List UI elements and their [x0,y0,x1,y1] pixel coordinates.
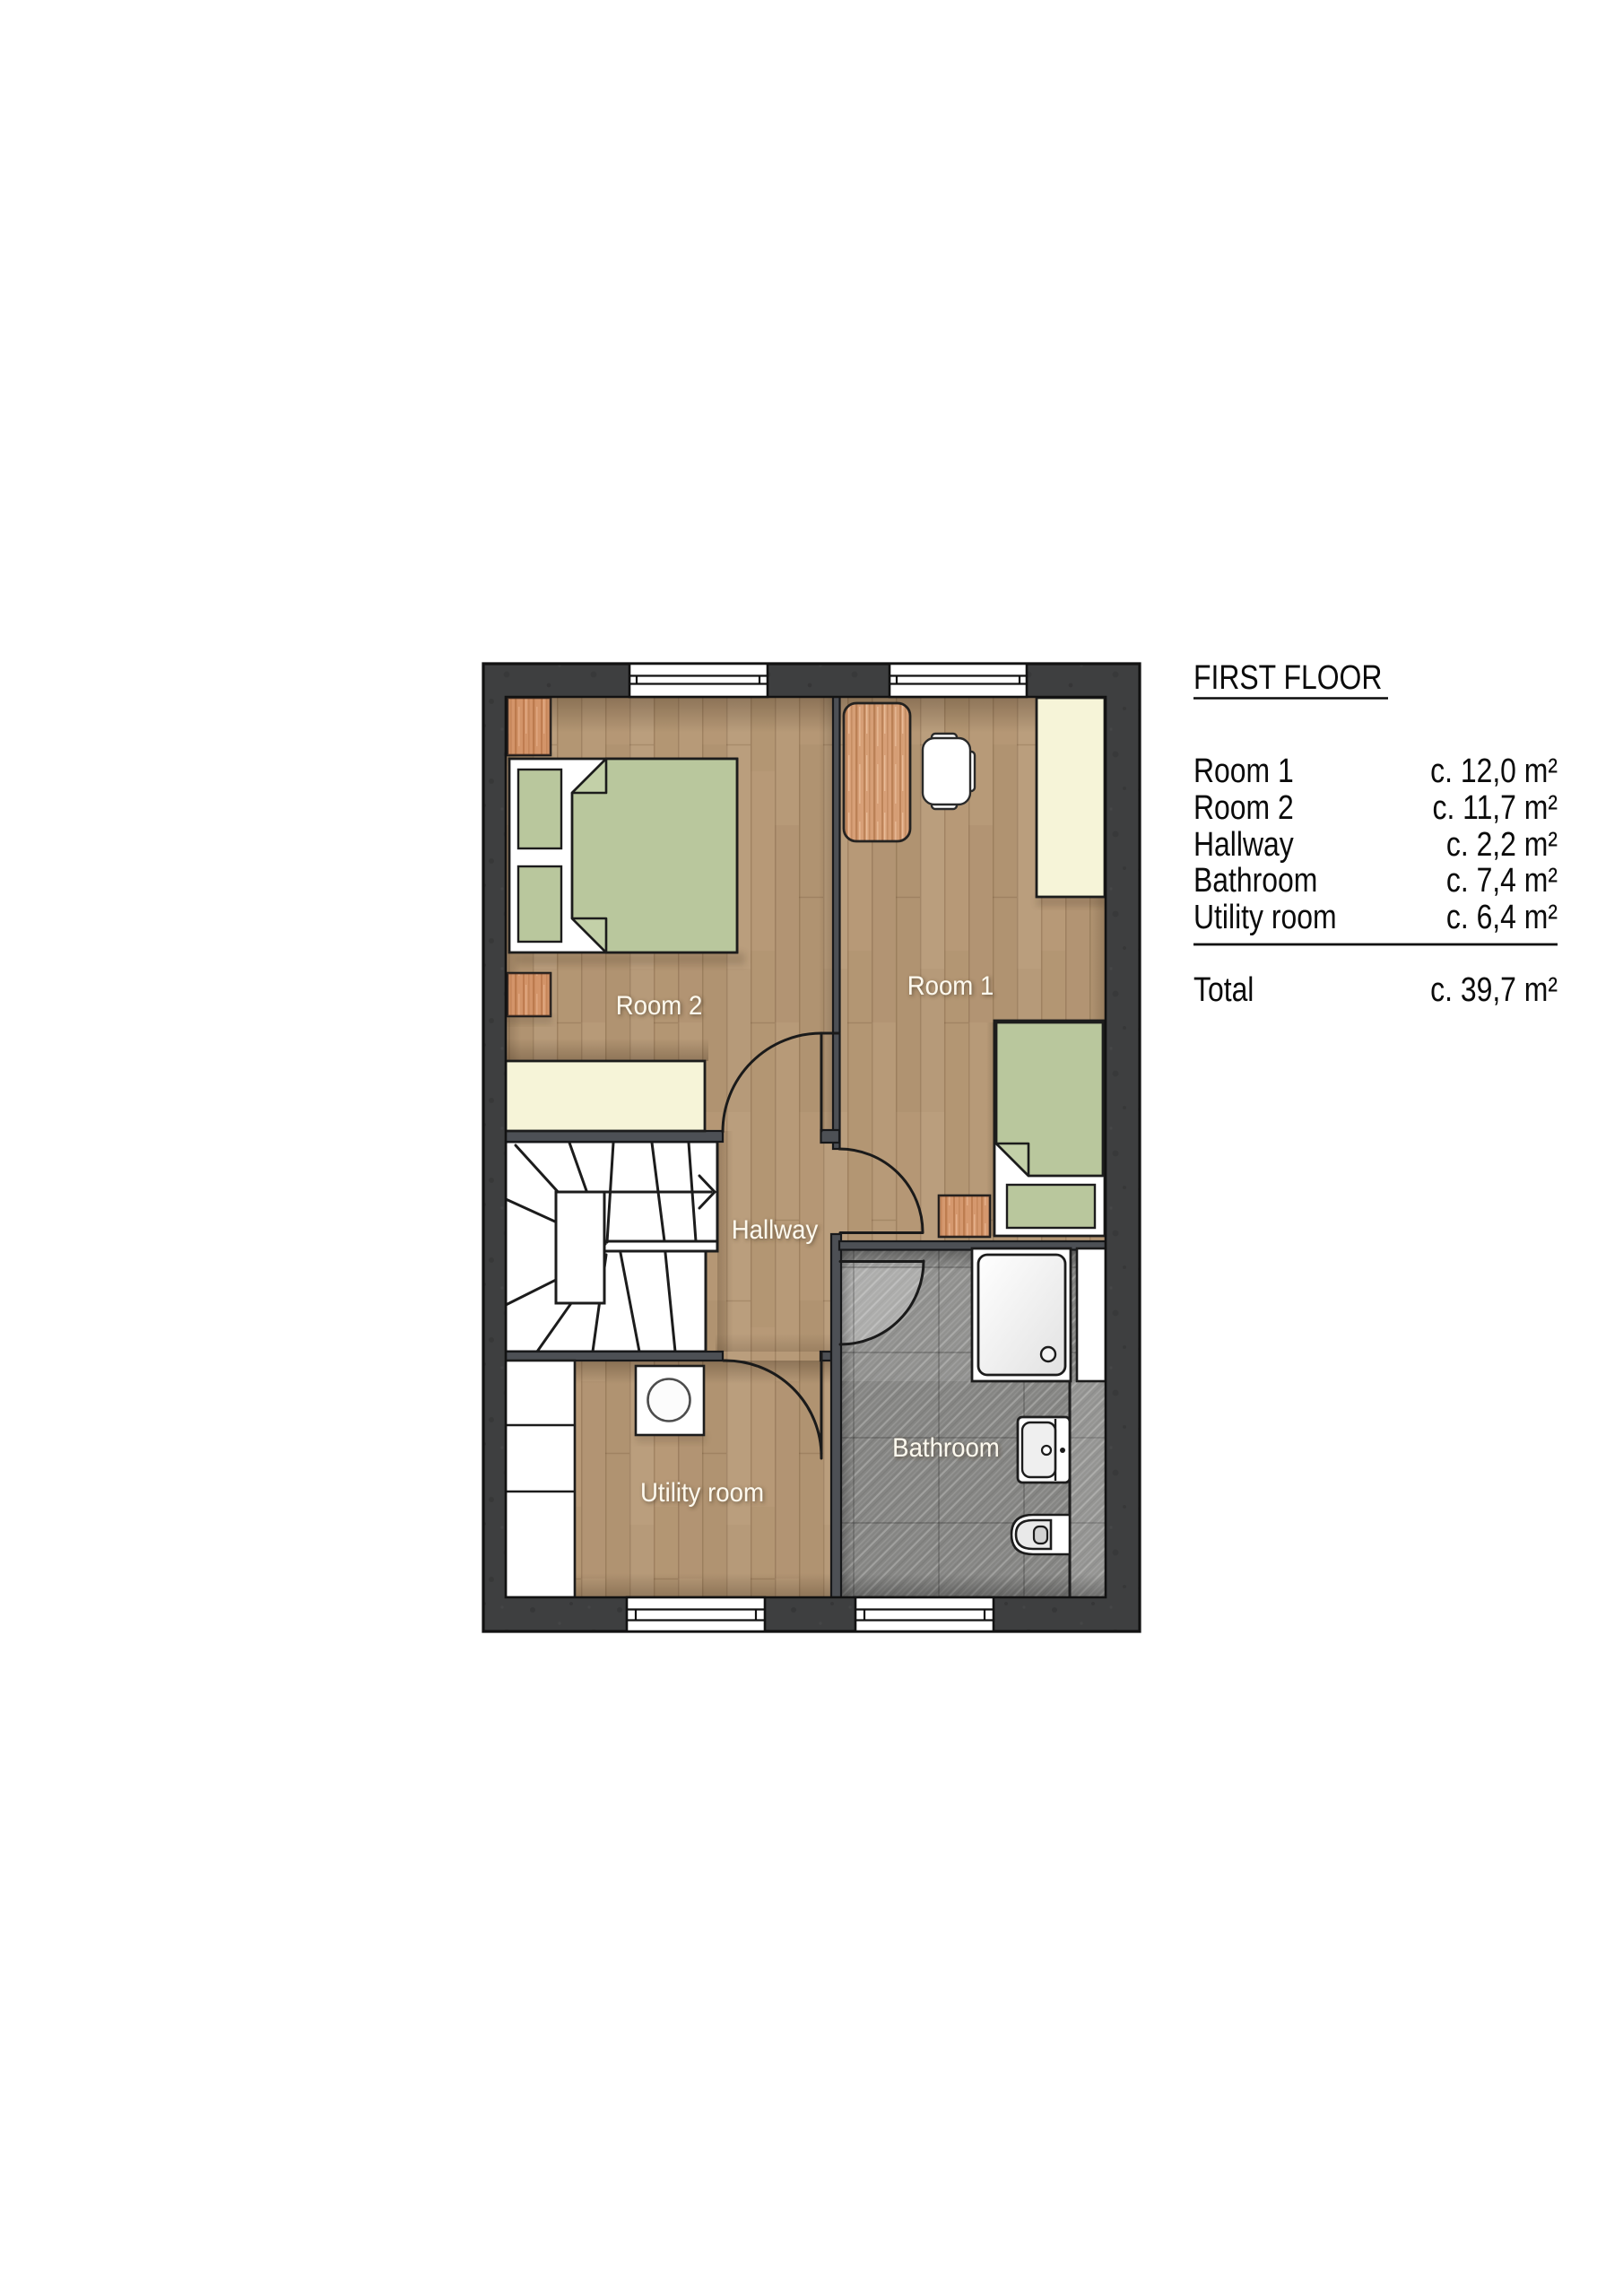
svg-text:Bathroom: Bathroom [892,1433,1000,1463]
svg-text:c. 12,0 m²: c. 12,0 m² [1430,752,1558,789]
svg-text:c. 39,7 m²: c. 39,7 m² [1430,970,1558,1008]
svg-text:FIRST FLOOR: FIRST FLOOR [1193,658,1382,696]
svg-text:Room 2: Room 2 [616,991,703,1021]
svg-text:Utility room: Utility room [640,1478,764,1508]
svg-text:c. 2,2 m²: c. 2,2 m² [1446,825,1558,863]
svg-text:Hallway: Hallway [1193,825,1294,863]
svg-text:c. 6,4 m²: c. 6,4 m² [1446,898,1558,935]
svg-text:Bathroom: Bathroom [1193,861,1317,899]
svg-text:Utility room: Utility room [1193,898,1337,935]
svg-text:c. 7,4 m²: c. 7,4 m² [1446,861,1558,899]
svg-text:Total: Total [1193,970,1254,1008]
svg-text:Room 1: Room 1 [1193,752,1294,789]
svg-text:Room 2: Room 2 [1193,788,1294,826]
svg-text:Hallway: Hallway [732,1215,819,1245]
svg-text:c. 11,7 m²: c. 11,7 m² [1433,788,1558,826]
svg-text:Room 1: Room 1 [907,971,994,1001]
